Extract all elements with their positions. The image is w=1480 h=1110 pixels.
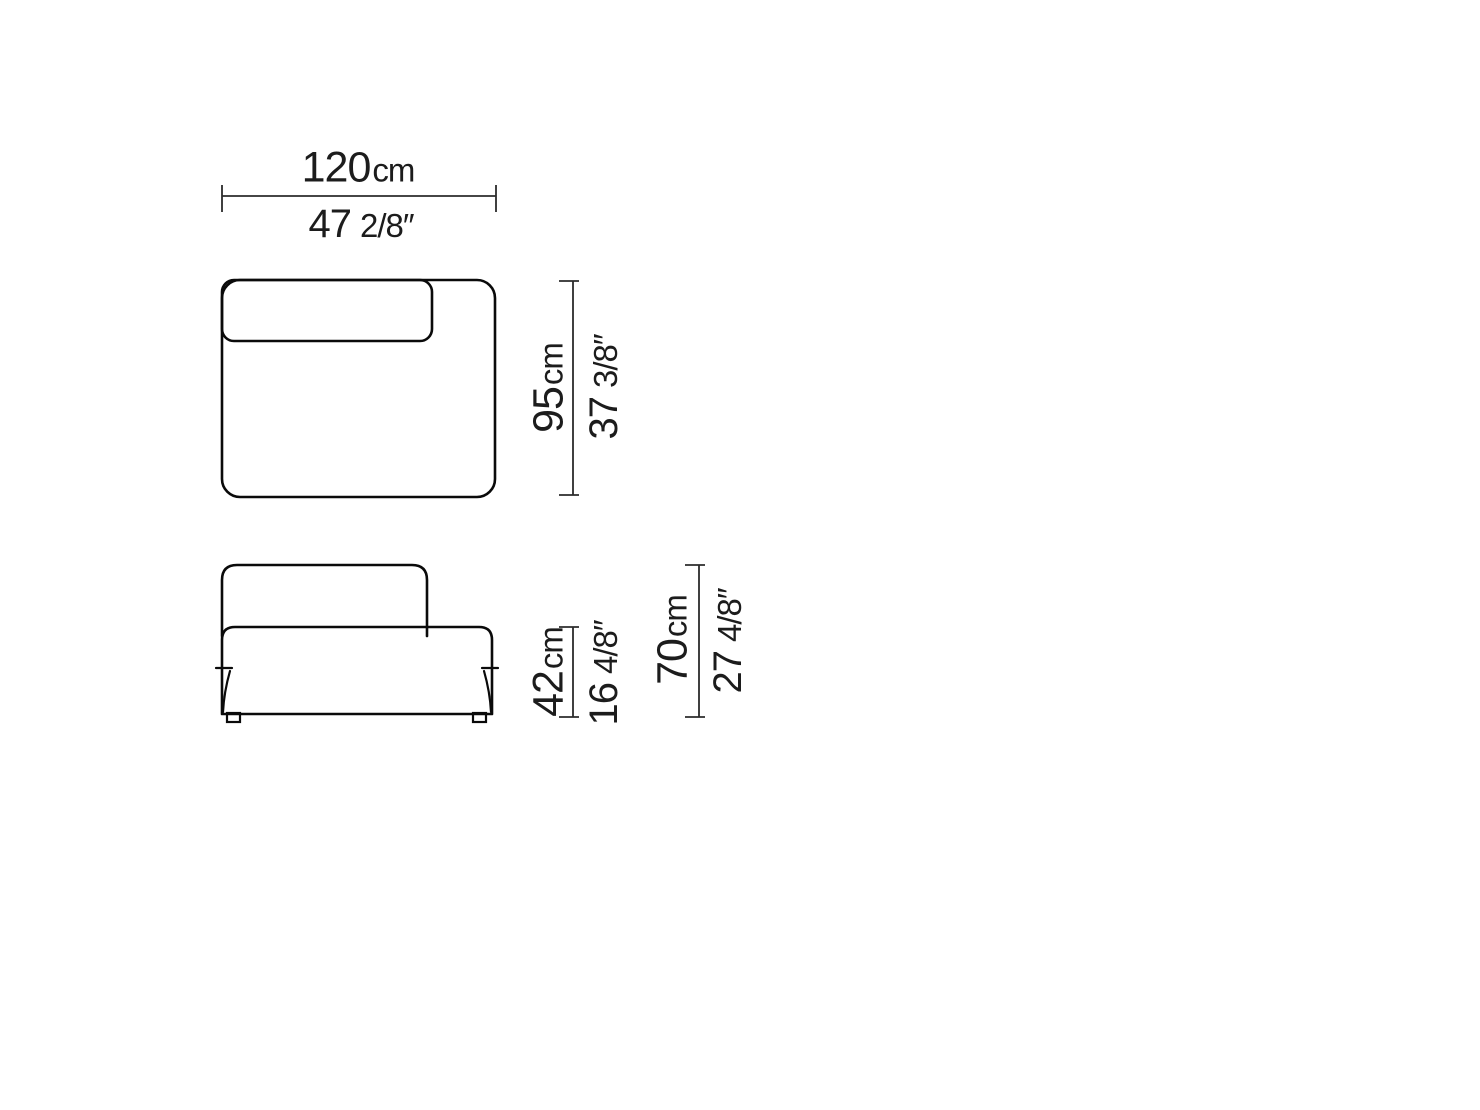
depth-metric-value: 95: [525, 387, 573, 433]
depth-imperial-fraction: 3/8″: [587, 334, 624, 388]
depth-metric-unit: cm: [533, 343, 570, 385]
overall-height-metric-value: 70: [649, 639, 697, 685]
overall-height-imperial-label: 274/8″: [708, 588, 748, 693]
front-view-seat: [222, 627, 492, 714]
sofa-module-technical-drawing: [0, 0, 1480, 1110]
overall-height-imperial-value: 27: [706, 651, 750, 694]
depth-imperial-label: 373/8″: [584, 334, 624, 439]
overall-height-imperial-fraction: 4/8″: [711, 588, 748, 642]
spec-sheet-canvas: 120cm 472/8″ 95cm 373/8″ 42cm 164/8″ 70c…: [0, 0, 1480, 1110]
width-metric-label: 120cm: [302, 147, 415, 190]
width-imperial-fraction: 2/8″: [360, 207, 414, 244]
front-view-backrest: [222, 565, 427, 636]
width-metric-value: 120: [302, 144, 371, 192]
seat-height-metric-unit: cm: [533, 627, 570, 669]
top-view: [222, 280, 495, 497]
seat-height-imperial-value: 16: [582, 683, 626, 726]
top-view-seat-outline: [222, 280, 495, 497]
width-metric-unit: cm: [372, 152, 414, 189]
seat-height-imperial-fraction: 4/8″: [587, 620, 624, 674]
overall-height-metric-unit: cm: [657, 595, 694, 637]
front-view: [216, 565, 498, 722]
width-imperial-label: 472/8″: [308, 204, 413, 244]
overall-height-metric-label: 70cm: [652, 595, 695, 685]
seat-height-metric-value: 42: [525, 671, 573, 717]
seat-height-metric-label: 42cm: [528, 627, 571, 717]
depth-imperial-value: 37: [582, 397, 626, 440]
seat-height-imperial-label: 164/8″: [584, 620, 624, 725]
depth-metric-label: 95cm: [528, 343, 571, 433]
width-imperial-value: 47: [308, 202, 351, 246]
right-skirt-curve: [484, 671, 491, 712]
top-view-backrest-cushion: [222, 280, 432, 341]
left-skirt-curve: [223, 671, 230, 712]
